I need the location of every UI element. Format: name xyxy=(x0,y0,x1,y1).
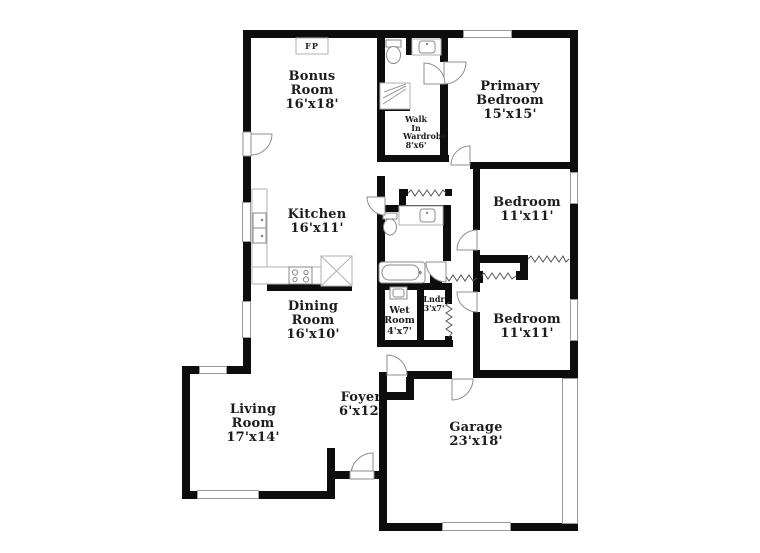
room-label-wet-room: Wet Room 4'x7' xyxy=(381,306,418,337)
room-name: Bedroom xyxy=(482,196,572,210)
closet-rod-zigzag xyxy=(481,273,516,279)
room-name: Foyer xyxy=(316,391,406,405)
stove-burner xyxy=(304,270,308,274)
wall-hall-closet xyxy=(445,189,452,196)
door-leaf xyxy=(350,471,374,479)
floor-plan: FP Bonus Room 16'x18' Primary Bedroom 15… xyxy=(0,0,760,553)
door-arc-primary-bedroom xyxy=(451,146,470,165)
room-dims: 11'x11' xyxy=(482,327,572,341)
faucet-dot xyxy=(426,212,428,214)
toilet-icon xyxy=(387,47,401,64)
wall-bath2-right xyxy=(443,205,451,261)
room-name: Bonus Room xyxy=(280,70,344,98)
pantry-x-icon xyxy=(321,256,352,286)
shower-lines xyxy=(383,89,406,104)
garage-door-bottom xyxy=(442,522,511,531)
door-arc-bath-to-primary xyxy=(444,62,466,84)
wall-bath-divider xyxy=(406,38,412,55)
door-arc-bedroom1 xyxy=(457,230,477,250)
wall-bedroom2-bottom xyxy=(473,370,578,378)
wall-living-right xyxy=(327,448,335,499)
kitchen-sink-icon xyxy=(253,213,266,228)
wall-primary-bottom xyxy=(470,162,578,169)
room-dims: 23'x18' xyxy=(421,435,531,449)
wall-closet-divider xyxy=(516,271,524,280)
room-dims: 11'x11' xyxy=(482,210,572,224)
door-arc-foyer-closet xyxy=(387,355,407,375)
room-name: Garage xyxy=(421,421,531,435)
toilet-icon xyxy=(383,213,397,219)
wall-entry xyxy=(335,471,350,479)
wall-bedroom2-left xyxy=(473,283,480,292)
wall-left-upper xyxy=(243,30,251,133)
toilet-icon xyxy=(384,219,397,235)
wall-right-upper xyxy=(570,30,578,173)
wall-bath2-top xyxy=(377,205,451,212)
room-name: Bedroom xyxy=(482,313,572,327)
stove-icon xyxy=(289,267,312,284)
toilet-icon xyxy=(386,40,401,47)
garage-door-side xyxy=(562,378,578,524)
room-label-bedroom2: Bedroom 11'x11' xyxy=(482,313,572,341)
window xyxy=(199,366,227,374)
room-label-living: Living Room 17'x14' xyxy=(223,403,283,445)
closet-rod-zigzag xyxy=(528,256,569,262)
faucet-dot xyxy=(261,235,264,238)
wall-wardrobe-right xyxy=(440,84,448,162)
door-leaf xyxy=(243,132,251,156)
room-label-primary: Primary Bedroom 15'x15' xyxy=(475,80,545,122)
room-label-laundry: Lndr 3'x7' xyxy=(417,295,451,312)
closet-rod-zigzag xyxy=(408,190,446,196)
wall-left-upper xyxy=(243,155,251,203)
room-name: Dining Room xyxy=(283,300,343,328)
room-label-bedroom1: Bedroom 11'x11' xyxy=(482,196,572,224)
room-dims: 16'x11' xyxy=(272,222,362,236)
window xyxy=(197,490,259,499)
wall-left-mid xyxy=(243,242,251,302)
pantry-x-icon xyxy=(321,256,352,286)
fireplace-label: FP xyxy=(296,38,328,54)
wall-bedroom1-left xyxy=(473,250,480,283)
fireplace-text: FP xyxy=(305,41,319,51)
wall-bedroom1-left xyxy=(473,169,480,230)
door-arc-garage-entry xyxy=(452,379,473,400)
bathtub-icon xyxy=(382,265,419,280)
shower-lines xyxy=(384,84,406,92)
wall-tub-divider xyxy=(377,283,452,290)
kitchen-counter-bottom xyxy=(252,267,352,284)
faucet-dot xyxy=(418,271,422,275)
room-label-dining: Dining Room 16'x10' xyxy=(283,300,343,342)
kitchen-pantry-box xyxy=(321,256,352,286)
door-arc-bedroom2 xyxy=(457,292,477,312)
faucet-dot xyxy=(261,219,264,222)
bathtub-icon xyxy=(379,262,425,283)
sink-icon xyxy=(393,289,404,297)
door-arc-wardrobe xyxy=(424,63,445,84)
window xyxy=(242,301,251,338)
room-label-wardrobe: Walk In Wardrobe 8'x6' xyxy=(403,115,429,150)
wall-foyer-closet xyxy=(406,377,414,400)
shower-lines xyxy=(383,86,406,98)
door-arc-front-entry xyxy=(351,453,373,475)
wall-left-lower xyxy=(182,366,190,499)
wall-wet-bottom xyxy=(377,340,453,347)
room-dims: 17'x14' xyxy=(223,431,283,445)
faucet-dot xyxy=(426,43,428,45)
room-dims: 16'x10' xyxy=(283,328,343,342)
closet-rod-zigzag xyxy=(442,275,477,281)
room-dims: 6'x12' xyxy=(316,405,406,419)
room-name: Primary Bedroom xyxy=(475,80,545,108)
room-dims: 16'x18' xyxy=(280,98,344,112)
wall-wardrobe-bottom xyxy=(377,155,449,162)
stove-burner xyxy=(293,277,297,281)
vanity-counter xyxy=(412,39,441,55)
room-dims: 4'x7' xyxy=(381,327,418,337)
room-label-garage: Garage 23'x18' xyxy=(421,421,531,449)
wall-bedroom2-left xyxy=(473,312,480,370)
room-name: Wet Room xyxy=(381,306,418,327)
stove-burner xyxy=(292,270,297,275)
wall-bath2-left xyxy=(377,212,385,284)
wall-bath-right xyxy=(440,36,448,62)
door-arc-bonus-room xyxy=(251,134,272,155)
room-dims: 15'x15' xyxy=(475,108,545,122)
room-name: Walk In Wardrobe xyxy=(403,115,429,141)
wall-shower-divider xyxy=(377,104,410,111)
room-label-bonus: Bonus Room 16'x18' xyxy=(280,70,344,112)
window xyxy=(242,202,251,242)
wall-kitchen-bottom xyxy=(267,284,352,291)
room-label-kitchen: Kitchen 16'x11' xyxy=(272,208,362,236)
kitchen-sink-icon xyxy=(253,228,266,243)
room-dims: 8'x6' xyxy=(403,141,429,150)
wall-bath-left xyxy=(377,36,385,162)
window xyxy=(463,30,512,38)
room-dims: 3'x7' xyxy=(417,304,451,313)
sink-icon xyxy=(419,41,435,53)
room-name: Living Room xyxy=(223,403,283,431)
wall-linen-stub xyxy=(430,273,442,283)
wall-hall-closet xyxy=(399,189,406,212)
room-name: Kitchen xyxy=(272,208,362,222)
wall-top xyxy=(243,30,578,38)
wall-right-lower xyxy=(570,340,578,378)
room-label-foyer: Foyer 6'x12' xyxy=(316,391,406,419)
stove-burner xyxy=(303,277,308,282)
kitchen-counter-left xyxy=(252,189,267,284)
